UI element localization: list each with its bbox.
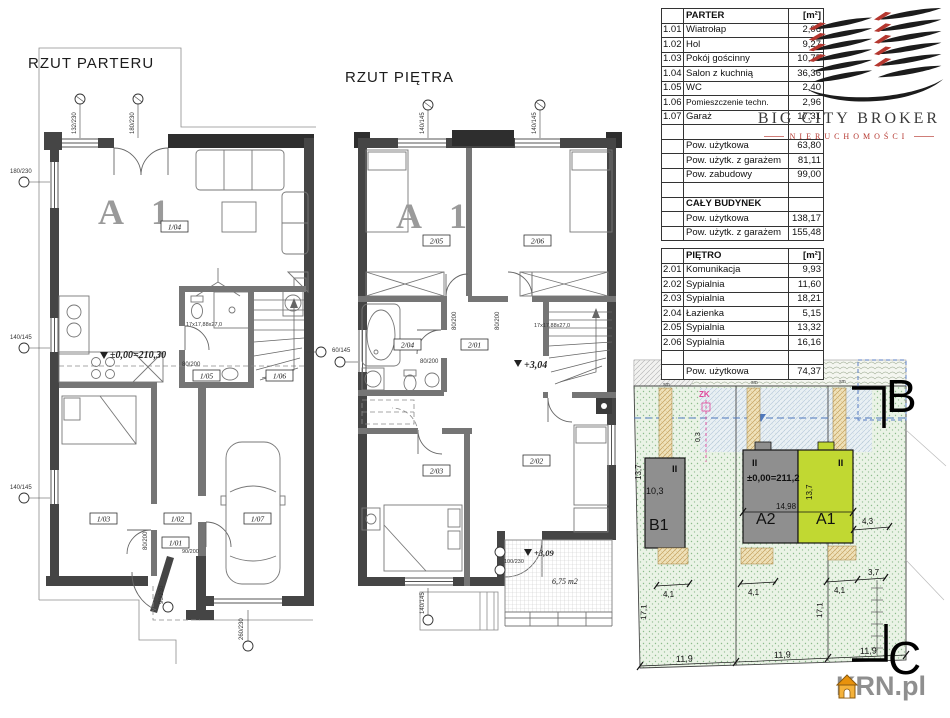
house-icon bbox=[836, 674, 858, 700]
dim-door-top: 180/230 bbox=[130, 112, 136, 134]
building-row: Pow. użytk. z garażem155,48 bbox=[662, 226, 824, 241]
storeys-a1: II bbox=[838, 458, 843, 469]
room-label: 2/04 bbox=[401, 341, 415, 350]
dim-win-left3: 140/145 bbox=[10, 485, 32, 491]
summary-row: Pow. użytk. z garażem81,11 bbox=[662, 154, 824, 169]
storeys-b1: II bbox=[672, 464, 677, 475]
room-label: 2/02 bbox=[530, 457, 544, 466]
building-a1-label: A1 bbox=[816, 511, 836, 528]
spacer-row bbox=[662, 183, 824, 198]
krn-watermark: KRN.pl bbox=[836, 671, 926, 702]
table-row: 2.04Łazienka5,15 bbox=[662, 307, 824, 322]
spacer-row bbox=[662, 125, 824, 140]
table-header-row: PARTER [m²] bbox=[662, 9, 824, 24]
dim-win-top2: 140/145 bbox=[532, 112, 538, 134]
dim-garage-door: 260/230 bbox=[239, 618, 245, 640]
storeys-a2: II bbox=[752, 458, 757, 469]
dim-door-a: 80/200 bbox=[452, 311, 458, 330]
building-b1 bbox=[645, 458, 685, 548]
dim-door-b: 80/200 bbox=[495, 311, 501, 330]
pietro-level-mark: +3,04 bbox=[524, 360, 547, 371]
room-label: 2/05 bbox=[430, 237, 444, 246]
table-title: PIĘTRO bbox=[684, 249, 789, 264]
dim-sm2: sm bbox=[751, 380, 758, 386]
bedroom-203-furniture bbox=[362, 505, 462, 571]
parter-title: RZUT PARTERU bbox=[28, 55, 154, 72]
room-label: 1/02 bbox=[171, 515, 185, 524]
table-row: 2.03Sypialnia18,21 bbox=[662, 292, 824, 307]
parter-level-mark: ±0,00=210,30 bbox=[110, 350, 166, 361]
balcony: +3,09 6,75 m2 100/230 bbox=[495, 540, 612, 626]
pietro-outer-walls bbox=[354, 130, 622, 586]
table-row: 1.07Garaż17,31 bbox=[662, 110, 824, 125]
table-row: 1.06Pomieszczenie techn.2,96 bbox=[662, 96, 824, 111]
dim-depth1: 13,7 bbox=[634, 464, 643, 480]
dim-win-top1: 140/145 bbox=[420, 112, 426, 134]
dim-win-bottom: 140/145 bbox=[420, 592, 426, 614]
dim-side1: 17,1 bbox=[639, 604, 649, 620]
summary-row: Pow. zabudowy99,00 bbox=[662, 168, 824, 183]
building-title-row: CAŁY BUDYNEK bbox=[662, 197, 824, 212]
dim-door-entry: 90/200 bbox=[182, 549, 199, 555]
bedroom-206-furniture bbox=[520, 150, 612, 296]
parter-stair-note: 17x17,88x27,0 bbox=[186, 322, 222, 328]
level-marker-icon bbox=[514, 360, 522, 367]
level-marker-icon bbox=[100, 352, 108, 359]
room-label: 1/05 bbox=[200, 372, 214, 381]
pietro-unit-label: A 1 bbox=[396, 196, 477, 236]
dim-door-a: 80/200 bbox=[182, 362, 201, 368]
floorplan-sheet: RZUT PARTERU bbox=[0, 0, 950, 718]
porch-outline bbox=[420, 592, 498, 630]
table-row: 1.05WC2,40 bbox=[662, 81, 824, 96]
dim-balcony-door: 100/230 bbox=[504, 559, 524, 565]
pietro-table: PIĘTRO [m²] 2.01Komunikacja9,93 2.02Sypi… bbox=[661, 248, 824, 380]
room-label: 1/04 bbox=[168, 223, 182, 232]
dim-sm1: sm bbox=[663, 382, 670, 388]
balcony-area: 6,75 m2 bbox=[552, 577, 578, 586]
room-label: 2/01 bbox=[468, 341, 481, 350]
building-row: Pow. użytkowa138,17 bbox=[662, 212, 824, 227]
guest-room-bed bbox=[62, 396, 136, 444]
room-label: 2/06 bbox=[531, 237, 545, 246]
table-row: 1.02Hol9,27 bbox=[662, 38, 824, 53]
building-a2-label: A2 bbox=[756, 511, 776, 528]
unit-header: [m²] bbox=[789, 9, 824, 24]
dim-side2: 17,1 bbox=[815, 602, 825, 618]
pietro-floor-plan: RZUT PIĘTRA bbox=[330, 0, 655, 690]
site-plan: II II II B1 A2 A1 ±0,00=211,2 11,9 11,9 … bbox=[628, 350, 950, 690]
dim-sm3: sm bbox=[839, 379, 846, 385]
room-label: 1/01 bbox=[169, 539, 182, 548]
table-row: 2.05Sypialnia13,32 bbox=[662, 321, 824, 336]
dim-win-left1: 180/230 bbox=[10, 169, 32, 175]
area-tables: PARTER [m²] 1.01Wiatrołap2,06 1.02Hol9,2… bbox=[661, 8, 817, 380]
dim-plot1: 11,9 bbox=[676, 653, 693, 664]
parter-floor-plan: RZUT PARTERU bbox=[0, 0, 335, 690]
dim-depth2: 13,7 bbox=[805, 484, 814, 500]
table-title: PARTER bbox=[684, 9, 789, 24]
dim-terrace2: 4,1 bbox=[748, 588, 760, 597]
dim-terrace1: 4,1 bbox=[663, 590, 675, 599]
dim-door-c: 80/200 bbox=[420, 359, 439, 365]
unit-header: [m²] bbox=[789, 249, 824, 264]
dim-terrace3: 4,1 bbox=[834, 586, 846, 595]
zk-marker: ZK bbox=[699, 390, 710, 399]
dim-door-b: 80/200 bbox=[143, 531, 149, 550]
dim-right-offset: 3,7 bbox=[868, 568, 880, 577]
pietro-title: RZUT PIĘTRA bbox=[345, 69, 454, 86]
dim-a1-offset: 4,3 bbox=[862, 517, 874, 526]
table-row: 2.06Sypialnia16,16 bbox=[662, 336, 824, 351]
kitchen-furniture bbox=[59, 296, 163, 382]
table-row: 1.01Wiatrołap2,06 bbox=[662, 23, 824, 38]
table-row: 1.03Pokój gościnny10,75 bbox=[662, 52, 824, 67]
wc-fixtures bbox=[191, 290, 303, 380]
dim-plot2: 11,9 bbox=[774, 649, 791, 660]
table-row: 2.02Sypialnia11,60 bbox=[662, 278, 824, 293]
table-row: 2.01Komunikacja9,93 bbox=[662, 263, 824, 278]
table-row: 1.04Salon z kuchnią36,36 bbox=[662, 67, 824, 82]
balcony-level: +3,09 bbox=[534, 548, 554, 558]
spacer-row bbox=[662, 350, 824, 365]
room-label: 1/07 bbox=[251, 515, 265, 524]
section-b-letter: B bbox=[886, 370, 917, 422]
pietro-stair-note: 17x17,88x27,0 bbox=[534, 323, 570, 329]
parter-stairs: 17x17,88x27,0 bbox=[186, 298, 304, 380]
parter-interior-walls bbox=[59, 286, 306, 576]
site-level-mark: ±0,00=211,2 bbox=[747, 473, 800, 484]
logo-dash-right bbox=[914, 136, 934, 137]
bedroom-202-furniture bbox=[574, 398, 612, 532]
dim-total-width: 14,98 bbox=[776, 502, 797, 511]
dim-door-side: 90/230 bbox=[159, 585, 165, 604]
dim-plot3: 11,9 bbox=[860, 645, 877, 656]
room-label: 1/03 bbox=[97, 515, 111, 524]
summary-row: Pow. użytkowa74,37 bbox=[662, 365, 824, 380]
building-b1-label: B1 bbox=[649, 517, 669, 534]
parter-table: PARTER [m²] 1.01Wiatrołap2,06 1.02Hol9,2… bbox=[661, 8, 824, 241]
room-label: 1/06 bbox=[273, 372, 287, 381]
dim-win-left2: 140/145 bbox=[10, 335, 32, 341]
living-room-furniture bbox=[196, 150, 308, 296]
dim-win-top1: 132/230 bbox=[72, 112, 78, 134]
dim-b1-length: 10,3 bbox=[646, 486, 664, 496]
room-label: 2/03 bbox=[430, 467, 444, 476]
site-buildings: II II II B1 A2 A1 ±0,00=211,2 bbox=[645, 442, 853, 548]
dim-win-left: 60/145 bbox=[332, 348, 351, 354]
table-header-row: PIĘTRO [m²] bbox=[662, 249, 824, 264]
summary-row: Pow. użytkowa63,80 bbox=[662, 139, 824, 154]
dim-front-offset: 0,3 bbox=[695, 432, 702, 442]
